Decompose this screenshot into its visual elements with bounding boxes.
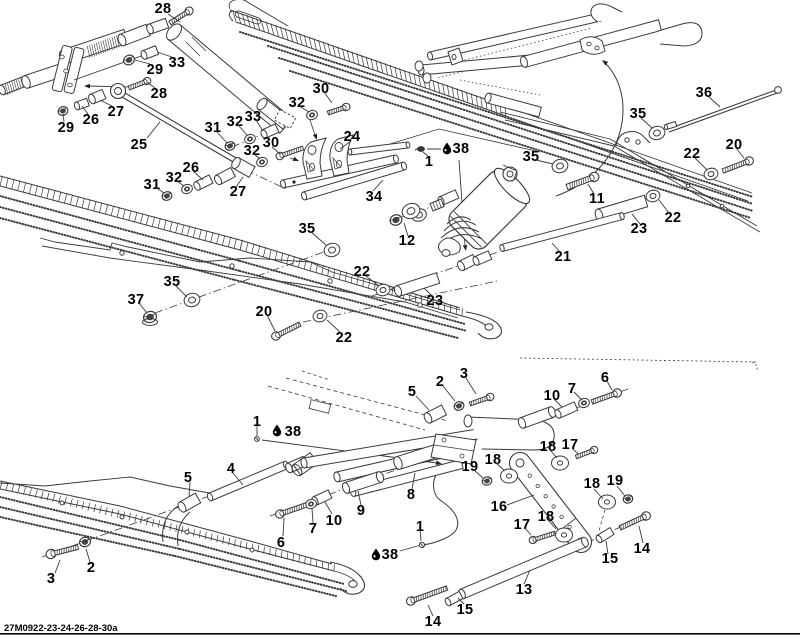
- svg-text:25: 25: [131, 137, 148, 153]
- svg-text:38: 38: [453, 141, 470, 157]
- svg-text:17: 17: [562, 437, 579, 453]
- svg-text:22: 22: [336, 330, 353, 346]
- svg-text:38: 38: [382, 547, 399, 563]
- svg-text:31: 31: [144, 177, 161, 193]
- svg-text:32: 32: [166, 170, 183, 186]
- svg-text:10: 10: [326, 513, 343, 529]
- svg-text:19: 19: [462, 459, 479, 475]
- svg-text:2: 2: [436, 374, 444, 390]
- svg-text:10: 10: [544, 388, 561, 404]
- svg-text:35: 35: [630, 106, 647, 122]
- svg-text:14: 14: [425, 614, 442, 630]
- svg-text:18: 18: [538, 509, 555, 525]
- svg-text:14: 14: [634, 541, 651, 557]
- svg-text:13: 13: [516, 582, 533, 598]
- svg-text:28: 28: [151, 86, 168, 102]
- svg-text:24: 24: [344, 129, 361, 145]
- svg-text:19: 19: [607, 473, 624, 489]
- svg-text:27M0922-23-24-26-28-30a: 27M0922-23-24-26-28-30a: [4, 623, 118, 634]
- svg-text:26: 26: [83, 112, 100, 128]
- svg-text:3: 3: [47, 571, 55, 587]
- svg-text:22: 22: [684, 146, 701, 162]
- svg-text:12: 12: [399, 233, 416, 249]
- svg-text:11: 11: [589, 191, 605, 207]
- svg-text:37: 37: [128, 292, 145, 308]
- svg-text:35: 35: [523, 149, 540, 165]
- svg-text:5: 5: [184, 470, 192, 486]
- svg-text:5: 5: [408, 384, 416, 400]
- svg-text:15: 15: [602, 551, 619, 567]
- svg-text:29: 29: [147, 62, 164, 78]
- svg-text:22: 22: [665, 210, 682, 226]
- svg-text:20: 20: [726, 137, 743, 153]
- svg-text:36: 36: [696, 85, 713, 101]
- svg-text:1: 1: [425, 154, 433, 170]
- svg-text:38: 38: [285, 424, 302, 440]
- svg-text:33: 33: [245, 109, 262, 125]
- svg-text:29: 29: [58, 120, 75, 136]
- svg-text:15: 15: [457, 602, 474, 618]
- svg-text:27: 27: [230, 184, 247, 200]
- svg-text:34: 34: [366, 189, 383, 205]
- svg-text:18: 18: [540, 439, 557, 455]
- svg-text:27: 27: [108, 104, 125, 120]
- svg-text:23: 23: [427, 293, 444, 309]
- svg-text:18: 18: [584, 476, 601, 492]
- svg-text:30: 30: [263, 135, 280, 151]
- svg-text:6: 6: [277, 535, 285, 551]
- svg-text:9: 9: [357, 503, 365, 519]
- svg-text:7: 7: [309, 521, 317, 537]
- svg-text:7: 7: [568, 381, 576, 397]
- svg-text:16: 16: [491, 499, 508, 515]
- svg-text:35: 35: [299, 221, 316, 237]
- svg-text:33: 33: [169, 55, 186, 71]
- svg-text:21: 21: [555, 249, 572, 265]
- svg-text:32: 32: [244, 143, 261, 159]
- svg-text:17: 17: [514, 517, 531, 533]
- svg-text:30: 30: [313, 81, 330, 97]
- svg-text:26: 26: [183, 160, 200, 176]
- svg-text:20: 20: [256, 304, 273, 320]
- svg-text:8: 8: [407, 487, 415, 503]
- svg-text:2: 2: [87, 560, 95, 576]
